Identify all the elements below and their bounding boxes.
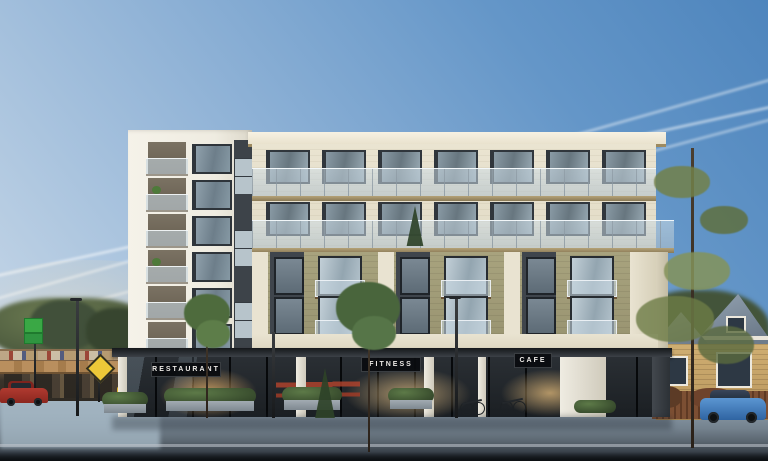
mid-floor-window — [570, 296, 614, 336]
street-tree-foliage — [196, 320, 230, 348]
mid-floor-narrow-window — [274, 257, 304, 295]
balcony-glass-railing — [146, 302, 188, 318]
balcony-glass-railing — [146, 266, 188, 282]
mid-floor-narrow-window — [400, 297, 430, 335]
red-car-wheel — [34, 398, 42, 406]
planter-base — [390, 400, 432, 409]
planter-base — [166, 401, 254, 411]
tall-tree-foliage — [664, 252, 730, 290]
balcony-railing-floor5 — [252, 220, 674, 249]
tall-tree-foliage — [654, 166, 710, 198]
street-tree-foliage — [352, 316, 396, 350]
street-lamp-pole — [272, 332, 275, 418]
road-shadow-edge — [0, 452, 768, 461]
curb-line — [0, 444, 768, 447]
blue-car-wheel — [708, 412, 719, 423]
tower-balcony — [148, 214, 186, 246]
balcony-glass-railing — [146, 194, 188, 210]
street-lamp-pole — [76, 300, 79, 416]
balcony-slab — [252, 196, 656, 201]
tower-window — [192, 180, 232, 210]
tower-window — [192, 144, 232, 174]
mid-floor-narrow-window — [400, 257, 430, 295]
bicycle-wheel — [513, 401, 526, 414]
mid-floor-narrow-window — [274, 297, 304, 335]
red-car-wheel — [7, 398, 15, 406]
storefront-end-pier — [652, 357, 670, 417]
green-street-sign — [24, 318, 43, 333]
fitness-sign: FITNESS — [361, 357, 421, 372]
tower-balcony — [148, 178, 186, 210]
cafe-sign: CAFE — [514, 353, 552, 368]
tower-window — [192, 252, 232, 282]
tower-window — [192, 216, 232, 246]
juliet-balcony-railing — [441, 280, 491, 297]
tower-balcony — [148, 142, 186, 174]
street-scene-rendering: RESTAURANT FITNESS CAFE — [0, 0, 768, 461]
juliet-balcony-railing — [567, 280, 617, 297]
bicycle-wheel — [472, 402, 485, 415]
building-shadow — [112, 416, 672, 430]
street-lamp-pole — [455, 298, 458, 418]
hedge-planter — [574, 400, 616, 413]
balcony-glass-railing — [146, 230, 188, 246]
mid-floor-window — [444, 256, 488, 296]
balcony-glass-railing — [146, 158, 188, 174]
storefront-canopy — [112, 348, 672, 357]
street-lamp-head — [449, 296, 461, 299]
mid-floor-narrow-window — [526, 257, 556, 295]
balcony-plant — [152, 186, 161, 194]
planter-base — [104, 404, 146, 413]
mid-floor-window — [444, 296, 488, 336]
mid-floor-narrow-window — [526, 297, 556, 335]
balcony-railing-floor6 — [252, 168, 656, 197]
tall-tree-foliage — [698, 326, 754, 364]
tower-balcony — [148, 286, 186, 318]
tall-tree-foliage — [700, 206, 748, 234]
green-street-sign — [24, 333, 43, 344]
tower-balcony — [148, 250, 186, 282]
street-lamp-head — [70, 298, 82, 301]
balcony-plant — [152, 258, 161, 266]
mid-floor-window — [570, 256, 614, 296]
restaurant-sign: RESTAURANT — [151, 362, 221, 377]
blue-car-wheel — [746, 412, 757, 423]
